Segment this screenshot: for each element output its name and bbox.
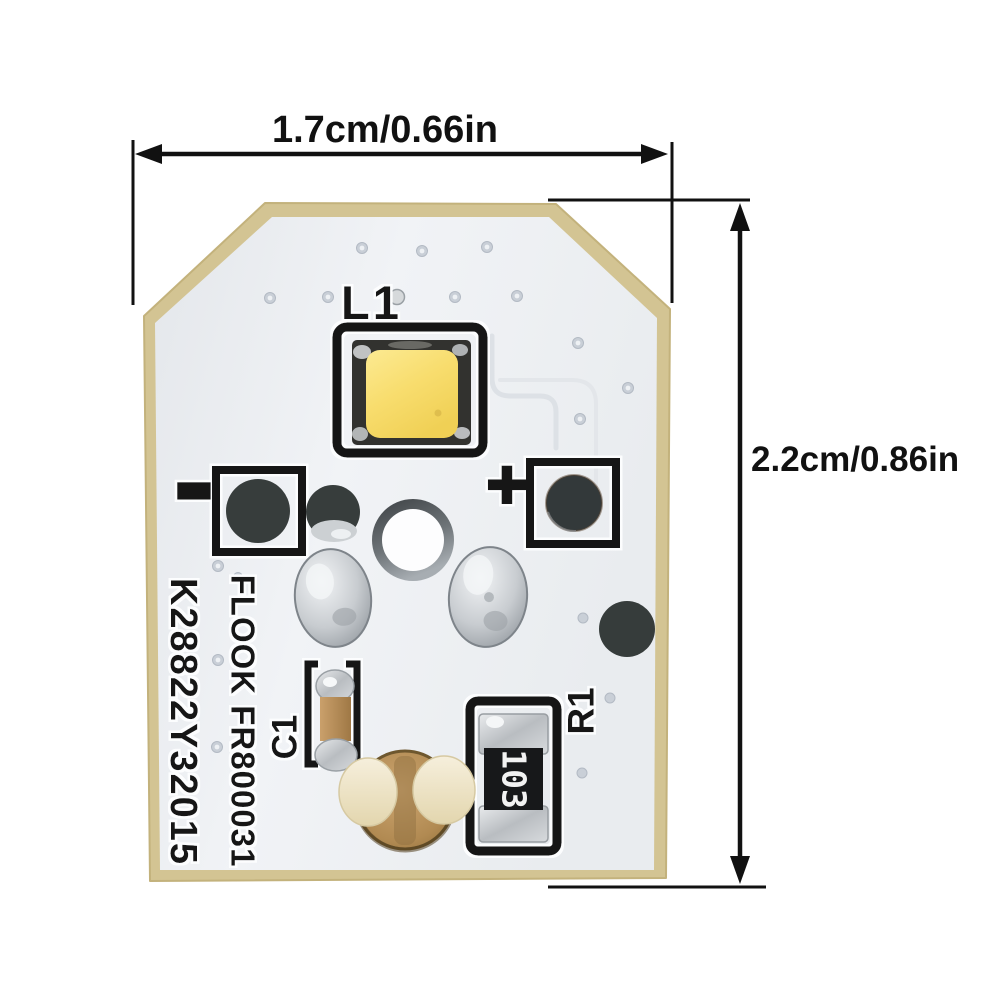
resistor-glint [486, 716, 504, 728]
via-hole [626, 386, 631, 391]
connector-slot [394, 756, 416, 845]
negative-terminal-pad [226, 479, 290, 543]
via-hole [215, 745, 220, 750]
hole-opening [382, 509, 444, 571]
via-hole [360, 246, 365, 251]
led-corner-glint [352, 427, 368, 441]
resistor-r1: 103 [479, 714, 548, 842]
led-l1 [352, 340, 471, 445]
connector-tab-right [413, 756, 475, 824]
board-marking-serial: K28822Y32015 [162, 578, 204, 866]
resistor-designator-label: R1 [561, 687, 602, 734]
phosphor-speck [435, 410, 442, 417]
via-hole [326, 295, 331, 300]
minus-polarity-mark: - [174, 414, 214, 548]
via-hole [576, 341, 581, 346]
mounting-hole [372, 499, 454, 581]
product-photo-led-pcb: L1 - + K28822Y32015 FLOOK FR800031 C1 R1 [0, 0, 1000, 1000]
height-dimension-label: 2.2cm/0.86in [751, 440, 959, 479]
capacitor-body [320, 697, 351, 741]
via-dot [577, 768, 587, 778]
mid-pad [306, 485, 360, 542]
via-hole [420, 249, 425, 254]
plus-polarity-mark: + [487, 445, 528, 523]
led-corner-glint [452, 344, 468, 356]
test-pad-dot [599, 601, 655, 657]
led-edge-sheen [388, 341, 432, 349]
via-hole [578, 417, 583, 422]
capacitor-designator-label: C1 [266, 715, 305, 760]
via-hole [515, 294, 520, 299]
connector-tab-left [339, 758, 397, 826]
via-dot [578, 613, 588, 623]
via-dot [605, 693, 615, 703]
capacitor-glint [323, 677, 337, 687]
mid-pad-solder-highlight [331, 529, 351, 539]
positive-terminal [546, 475, 602, 531]
board-marking-part-number: FLOOK FR800031 [225, 575, 262, 868]
pcb-board: L1 - + K28822Y32015 FLOOK FR800031 C1 R1 [144, 203, 670, 881]
via-hole [216, 658, 221, 663]
capacitor-c1 [315, 670, 357, 771]
via-hole [268, 296, 273, 301]
resistor-cap-bottom [479, 806, 548, 842]
via-hole [216, 564, 221, 569]
pcb-photo-canvas: L1 - + K28822Y32015 FLOOK FR800031 C1 R1 [0, 0, 1000, 1000]
width-dimension-label: 1.7cm/0.66in [272, 109, 498, 151]
led-designator-label: L1 [341, 276, 402, 329]
led-phosphor [366, 350, 458, 438]
via-hole [453, 295, 458, 300]
via-hole [485, 245, 490, 250]
resistor-value-label: 103 [495, 749, 534, 809]
